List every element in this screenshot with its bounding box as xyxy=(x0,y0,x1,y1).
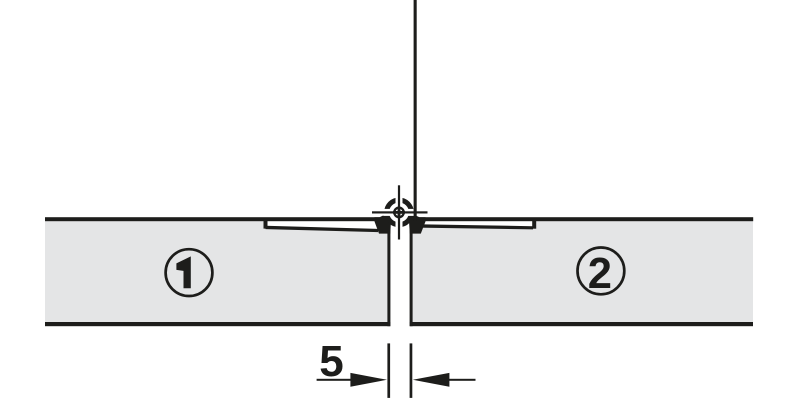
svg-text:2: 2 xyxy=(588,250,612,298)
svg-text:5: 5 xyxy=(319,337,343,386)
